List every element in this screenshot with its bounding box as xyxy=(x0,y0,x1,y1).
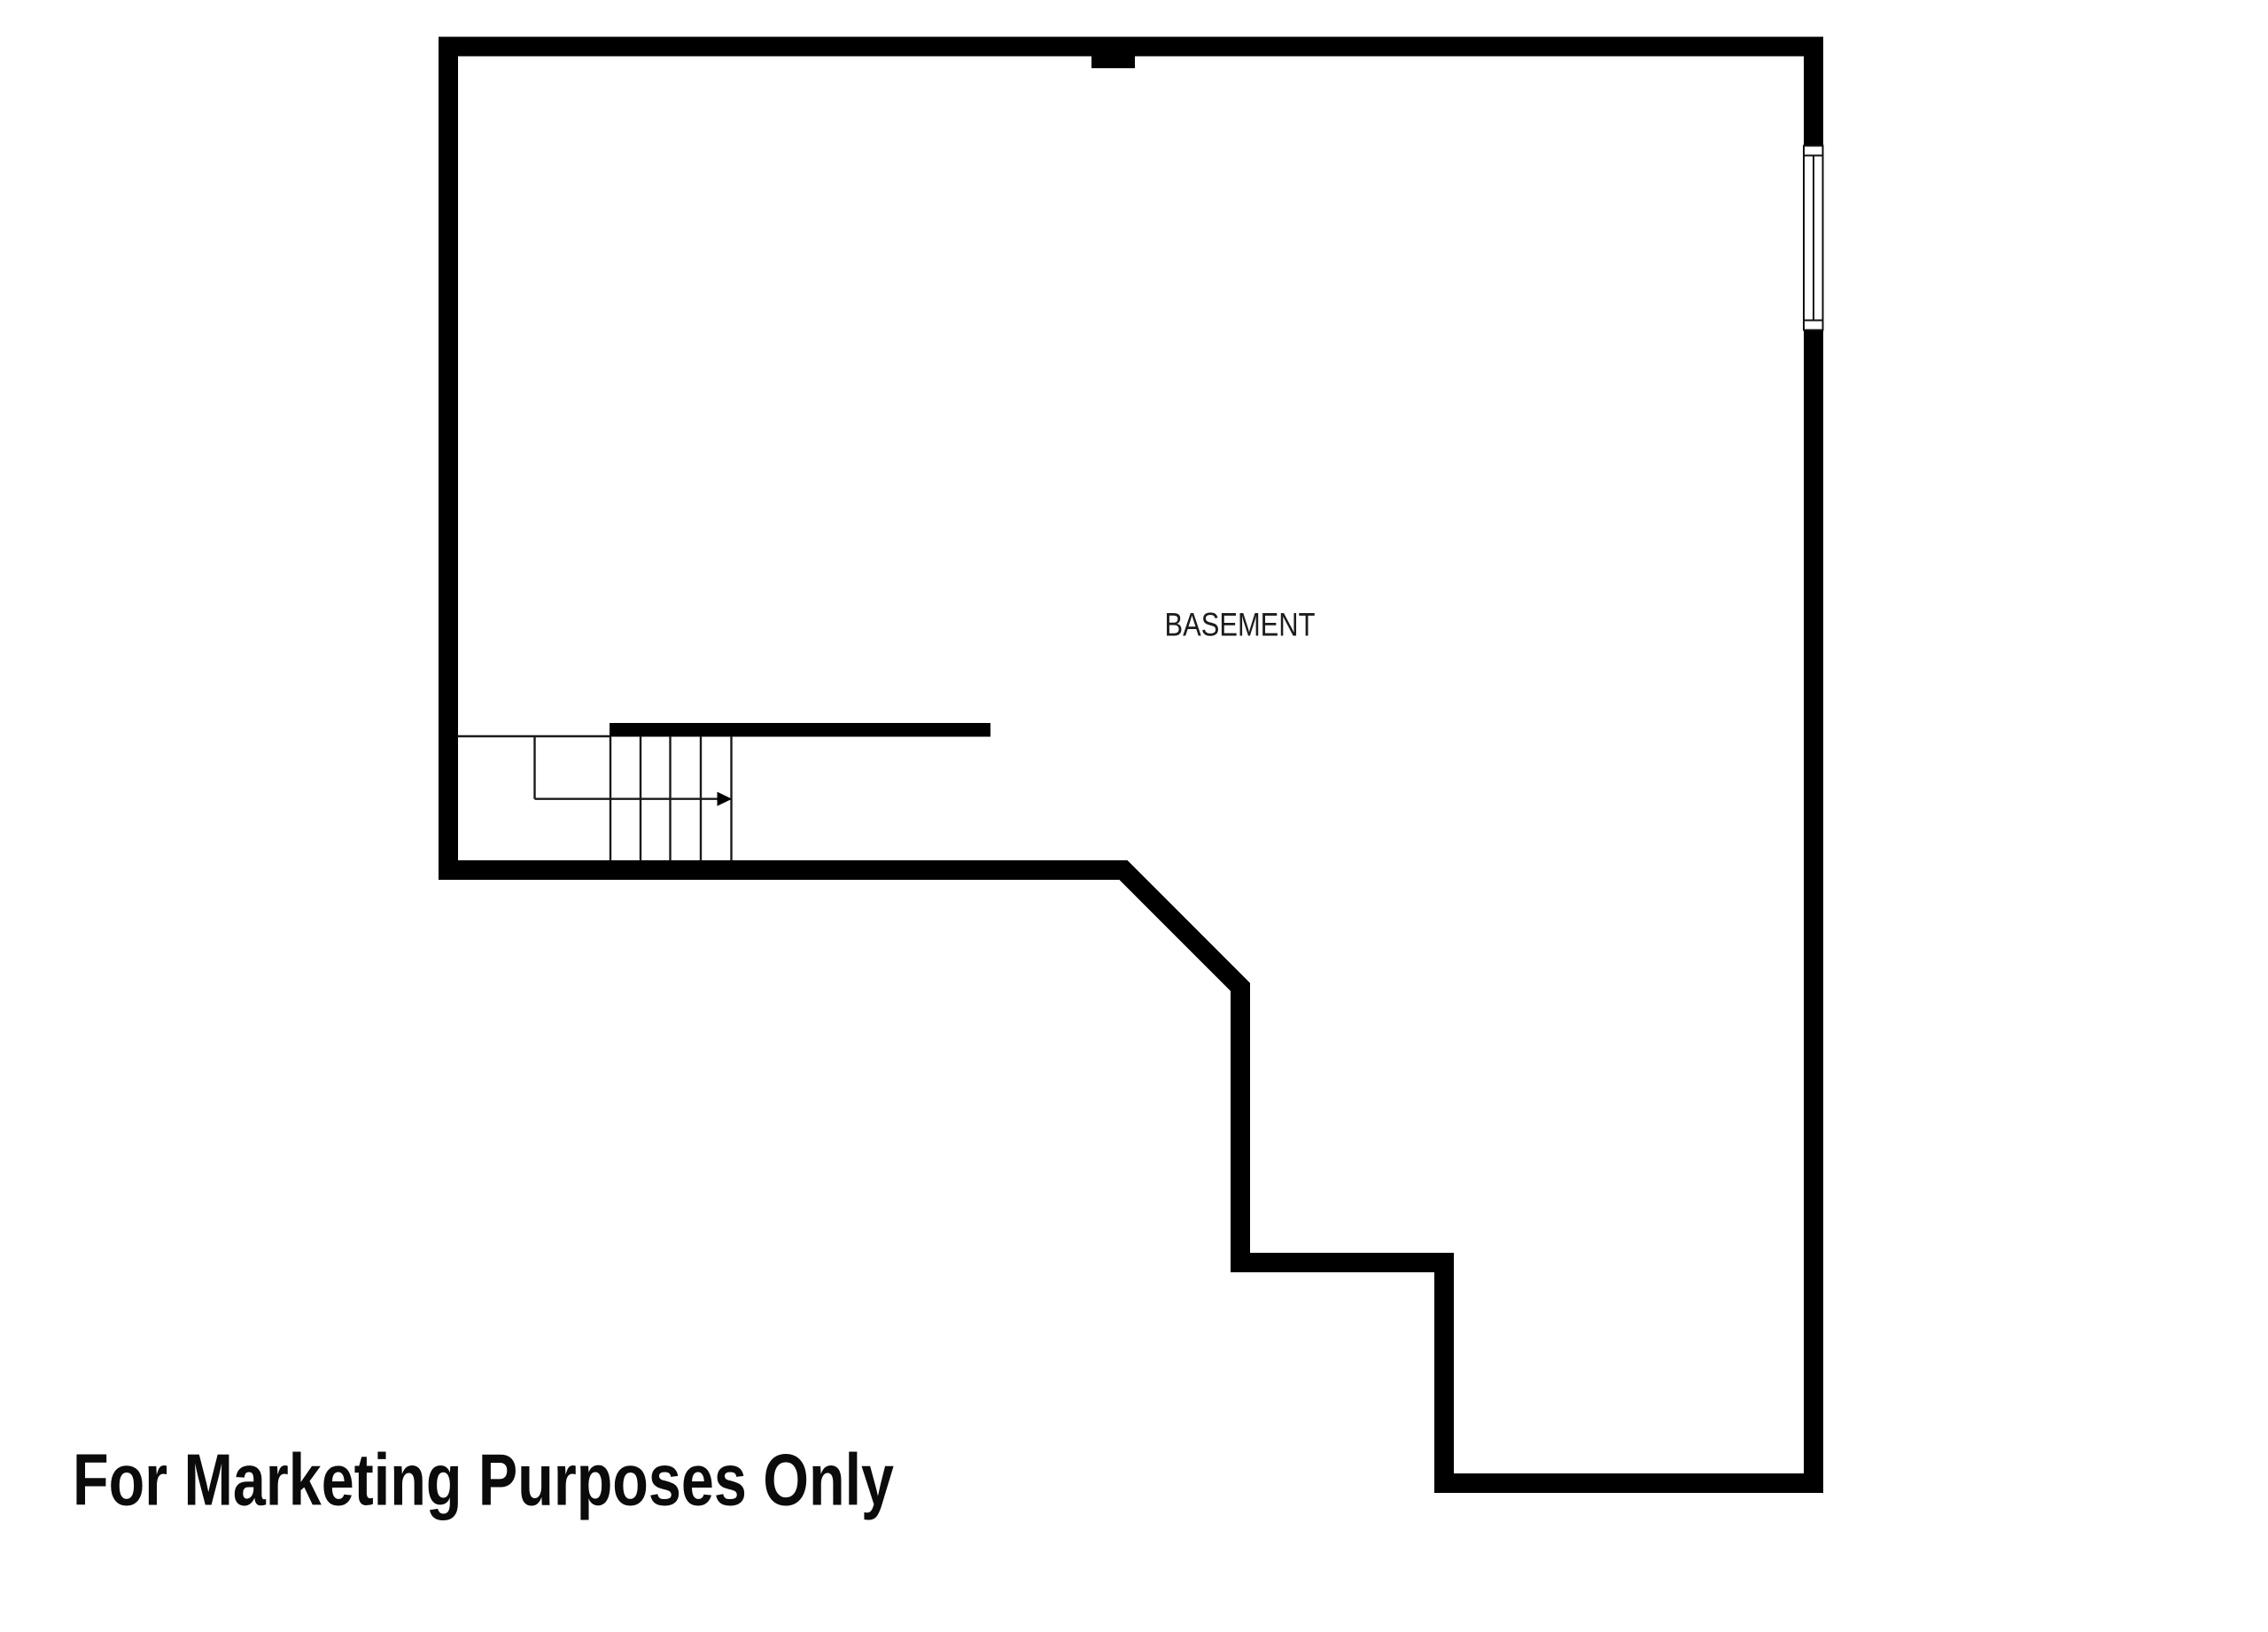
svg-text:BASEMENT: BASEMENT xyxy=(1165,607,1316,643)
svg-text:For Marketing Purposes Only: For Marketing Purposes Only xyxy=(73,1439,894,1521)
